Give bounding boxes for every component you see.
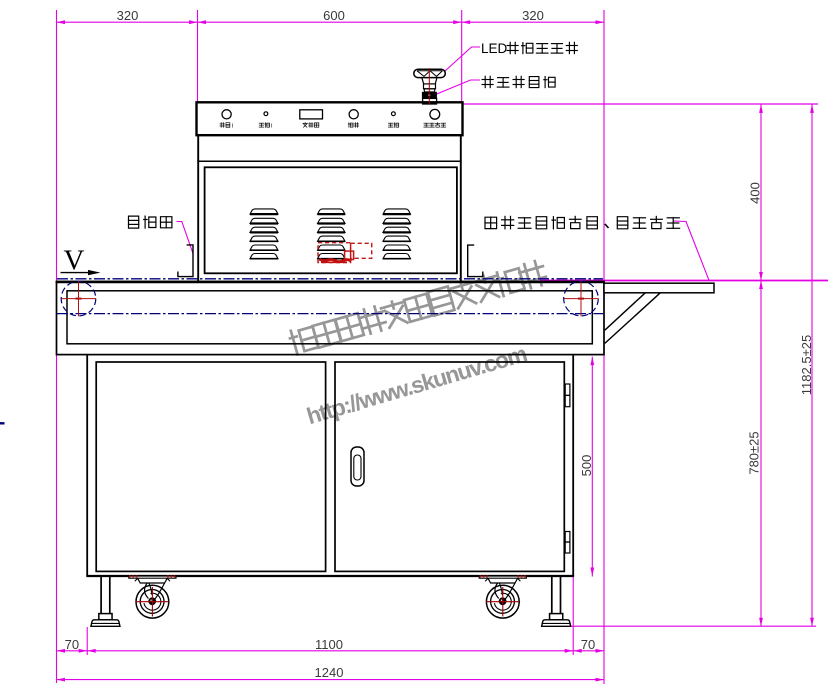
svg-text:1182.5±25: 1182.5±25 — [799, 335, 814, 395]
svg-text:1240: 1240 — [315, 665, 344, 680]
svg-text:780±25: 780±25 — [747, 431, 762, 474]
svg-text:70: 70 — [581, 637, 595, 652]
svg-text:70: 70 — [65, 637, 79, 652]
svg-text:320: 320 — [117, 8, 139, 23]
svg-text:V: V — [64, 245, 85, 277]
svg-text:400: 400 — [747, 182, 762, 204]
svg-text:600: 600 — [323, 8, 345, 23]
svg-text:1100: 1100 — [315, 637, 343, 652]
svg-text:500: 500 — [579, 455, 594, 477]
svg-text:320: 320 — [522, 8, 544, 23]
svg-text:LED: LED — [481, 41, 508, 56]
